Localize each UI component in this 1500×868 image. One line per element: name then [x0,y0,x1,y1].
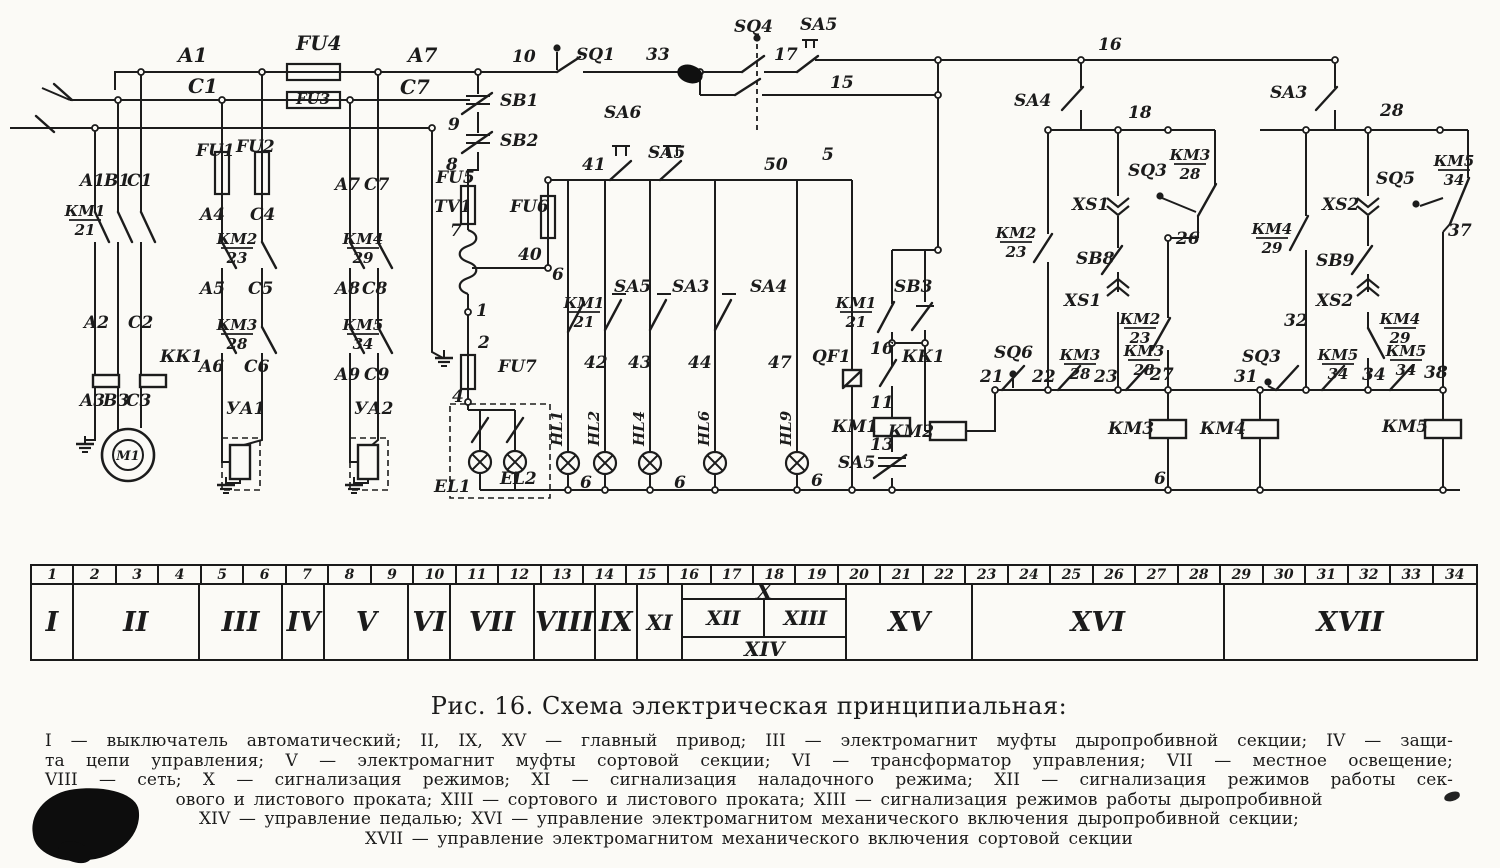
table-column-number: 31 [1306,566,1348,583]
table-column-number: 8 [329,566,371,583]
table-column-number: 33 [1391,566,1433,583]
component-label: КМ1 [831,417,878,437]
table-column-number: 12 [499,566,541,583]
component-label: A7 [406,43,438,67]
junction-dot [545,265,551,271]
section-index-table: 1234567891011121314151617181920212223242… [30,564,1478,661]
junction-dot [1045,387,1051,393]
component-label: A3 [78,391,105,411]
junction-dot [1440,387,1446,393]
component-label: SA5 [838,453,875,473]
component-label: SA5 [800,15,837,35]
junction-dot [1303,387,1309,393]
component-label: FU6 [509,197,549,217]
component-label: A1 [176,43,207,67]
component-label: XS2 [1315,291,1353,311]
component-label: 6 [674,473,686,493]
table-group-label: XVII [1225,585,1476,659]
table-number-row: 1234567891011121314151617181920212223242… [30,564,1478,585]
contact-stroke [36,116,54,132]
junction-dot [849,487,855,493]
actuator-dot [1412,200,1419,207]
table-column-number: 32 [1349,566,1391,583]
junction-dot [935,57,941,63]
table-column-number: 29 [1221,566,1263,583]
transformer-winding-icon [460,230,477,294]
component-label: SA6 [604,103,641,123]
junction-dot [602,487,608,493]
component-label: КМ4 [342,230,384,248]
junction-dot [1303,127,1309,133]
coil-icon [93,375,119,387]
table-group-label: II [74,585,200,659]
junction-dot [429,125,435,131]
component-label: A5 [198,279,225,299]
component-label: 34 [1444,171,1465,189]
junction-dot [935,92,941,98]
component-label: 37 [1448,221,1472,241]
component-label: 16 [870,339,894,359]
junction-dot [1365,127,1371,133]
component-label: 21 [74,221,96,239]
table-column-number: 20 [839,566,881,583]
table-column-number: 27 [1136,566,1178,583]
contact-stroke [1316,87,1337,110]
component-label: 43 [628,353,652,373]
component-label: 34 [353,335,374,353]
contact-stroke [118,212,132,242]
component-label: КМ1 [563,294,605,312]
component-label: 2 [477,333,490,353]
table-column-number: 3 [117,566,159,583]
component-label: 28 [1179,165,1201,183]
junction-dot [347,97,353,103]
component-label: SA5 [614,277,651,297]
table-group-signal-block: XIXXIIXIIIXIV [638,585,848,659]
junction-dot [1045,127,1051,133]
component-label: 26 [1175,229,1200,249]
junction-dot [259,69,265,75]
table-group-row: IIIIIIIVVVIVIIVIIIIXXIXXIIXIIIXIVXVXVIXV… [30,585,1478,661]
component-label: 10 [512,47,536,67]
junction-dot [1440,487,1446,493]
component-label: A6 [197,357,224,377]
component-label: 5 [822,145,834,165]
caption-line: ового и листового проката; XIII — сортов… [45,791,1453,811]
component-label: A2 [82,313,109,333]
component-label: SA5 [648,143,685,163]
component-label: A1 [78,171,105,191]
contact-stroke [742,56,764,72]
contact-stroke [610,161,631,180]
component-label: КМ2 [887,422,934,442]
component-label: TV1 [434,197,472,217]
schematic-figure: М1A1FU4A7C1FU3C7A1B1C1A2C2КК1A3B3C3FU1FU… [0,0,1500,558]
table-group-label: X [683,585,845,600]
component-label: КМ5 [1317,346,1359,364]
actuator-dot [1009,370,1016,377]
contact-stroke [1276,366,1298,390]
table-column-number: 23 [966,566,1008,583]
component-label: C5 [248,279,273,299]
component-label: КМ2 [1119,310,1161,328]
table-column-number: 1 [32,566,74,583]
component-label: 21 [573,313,595,331]
component-label: КМ4 [1379,310,1421,328]
table-column-number: 10 [414,566,456,583]
component-label: C3 [126,391,152,411]
contact-stroke [605,300,621,330]
component-label: 28 [226,335,248,353]
component-label: SB3 [894,277,933,297]
component-label: C1 [188,74,218,98]
table-group-label: III [200,585,284,659]
contact-stroke [1062,87,1083,110]
component-label: XS2 [1321,195,1359,215]
coil-icon [358,445,378,479]
component-label: A4 [198,205,225,225]
component-label: SQ1 [576,45,615,65]
component-label: A9 [333,365,360,385]
junction-dot [647,487,653,493]
component-label: 21 [845,313,867,331]
component-label: EL2 [499,469,537,489]
contact-stroke [262,242,276,268]
component-label: 6 [811,471,823,491]
component-label: КМ1 [64,202,106,220]
component-label: 6 [580,473,592,493]
contact-stroke [880,360,896,386]
component-label: 34 [1396,361,1417,379]
component-label: 6 [552,265,564,285]
junction-dot [475,69,481,75]
component-label: EL1 [433,477,471,497]
component-label: SA4 [1014,91,1051,111]
component-label: SA3 [1270,83,1307,103]
table-group-label: XV [847,585,973,659]
component-label: 41 [582,155,606,175]
table-group-label: XVI [973,585,1224,659]
component-label: C4 [250,205,275,225]
contact-stroke [141,212,155,242]
contact-stroke [1290,216,1308,250]
component-label: HL4 [630,411,648,447]
table-column-number: 19 [796,566,838,583]
table-column-number: 28 [1179,566,1221,583]
table-column-number: 21 [881,566,923,583]
table-column-number: 11 [457,566,499,583]
table-column-number: 22 [924,566,966,583]
component-label: SA3 [672,277,709,297]
component-label: SQ3 [1242,347,1281,367]
component-label: 44 [688,353,712,373]
contact-stroke [715,300,731,330]
component-label: КМ3 [216,316,258,334]
component-label: 18 [1128,103,1152,123]
component-label: 22 [1031,367,1056,387]
actuator-dot [553,44,560,51]
component-label: A8 [333,279,360,299]
component-label: КМ5 [1381,417,1428,437]
table-column-number: 16 [669,566,711,583]
junction-dot [1078,57,1084,63]
component-label: 15 [830,73,854,93]
actuator-dot [1156,192,1163,199]
caption-title: Рис. 16. Схема электрическая принципиаль… [45,692,1453,720]
figure-caption: Рис. 16. Схема электрическая принципиаль… [45,692,1453,849]
actuator-dot [1264,378,1271,385]
contact-stroke [797,56,818,72]
table-group-label: XII [683,600,765,636]
table-column-number: 2 [74,566,116,583]
motor-label: М1 [115,449,139,464]
component-label: SB2 [500,131,539,151]
table-group-label: VI [409,585,451,659]
component-label: 21 [979,367,1004,387]
contact-stroke [660,161,681,180]
wire [1162,198,1196,212]
contact-stroke [1368,328,1384,358]
junction-dot [375,69,381,75]
component-label: 40 [518,245,542,265]
table-column-number: 13 [542,566,584,583]
table-group-label: XI [638,585,684,659]
component-label: C1 [127,171,152,191]
component-label: 31 [1234,367,1258,387]
component-label: 4 [452,387,464,407]
table-column-number: 30 [1264,566,1306,583]
wire [1420,198,1443,206]
junction-dot [1165,487,1171,493]
component-label: SA4 [750,277,787,297]
component-label: HL1 [548,411,566,447]
table-column-number: 7 [287,566,329,583]
contact-stroke [1198,184,1216,216]
component-label: КМ1 [835,294,877,312]
junction-dot [1115,127,1121,133]
coil-icon [1242,420,1278,438]
component-label: 33 [646,45,670,65]
component-label: КМ3 [1169,146,1211,164]
table-column-number: 34 [1434,566,1476,583]
contact-stroke [1352,246,1372,274]
table-column-number: 5 [202,566,244,583]
component-label: 38 [1424,363,1448,383]
junction-dot [138,69,144,75]
component-label: 32 [1284,311,1308,331]
component-label: SQ3 [1128,161,1167,181]
junction-dot [115,97,121,103]
component-label: C7 [400,75,430,99]
component-label: 50 [764,155,788,175]
junction-dot [1365,387,1371,393]
component-label: 23 [1093,367,1118,387]
contact-stroke [1034,234,1052,262]
component-label: SQ6 [994,343,1033,363]
component-label: XS1 [1071,195,1109,215]
component-label: КМ4 [1199,419,1246,439]
component-label: 23 [226,249,248,267]
coil-icon [930,422,966,440]
component-label: SB8 [1076,249,1115,269]
junction-dot [1165,387,1171,393]
junction-dot [565,487,571,493]
coil-icon [1150,420,1186,438]
component-label: 29 [1261,239,1283,257]
component-label: HL2 [585,411,603,447]
table-column-number: 14 [584,566,626,583]
caption-line: VIII — сеть; X — сигнализация режимов; X… [45,771,1453,791]
component-label: УА2 [354,399,394,419]
table-group-label: V [325,585,409,659]
junction-dot [1332,57,1338,63]
table-group-label: I [32,585,74,659]
junction-dot [794,487,800,493]
table-column-number: 4 [159,566,201,583]
table-group-label: XIII [765,600,845,636]
component-label: 9 [448,115,460,135]
component-label: FU5 [435,168,475,188]
component-label: HL6 [695,410,713,447]
component-label: 7 [450,221,462,241]
component-label: 6 [1154,469,1166,489]
wire [432,128,443,358]
table-column-number: 9 [372,566,414,583]
junction-dot [1165,127,1171,133]
junction-dot [992,387,998,393]
junction-dot [889,487,895,493]
component-label: 28 [1379,101,1404,121]
component-label: 29 [352,249,374,267]
wire [966,390,995,431]
component-label: 47 [768,353,792,373]
junction-dot [1437,127,1443,133]
component-label: КМ5 [1433,152,1475,170]
component-label: КМ5 [342,316,384,334]
contact-stroke [650,300,666,330]
junction-dot [922,340,928,346]
component-label: XS1 [1063,291,1101,311]
component-label: FU7 [497,357,537,377]
component-label: 34 [1328,365,1349,383]
component-label: SB9 [1316,251,1355,271]
contact-stroke [878,302,894,332]
coil-icon [230,445,250,479]
component-label: 17 [774,45,798,65]
table-column-number: 15 [627,566,669,583]
table-column-number: 26 [1094,566,1136,583]
component-label: SB1 [500,91,538,111]
component-label: C6 [244,357,270,377]
component-label: КМ4 [1251,220,1293,238]
component-label: 34 [1362,365,1386,385]
connector-icon [1357,198,1379,207]
component-label: C9 [364,365,390,385]
table-column-number: 6 [244,566,286,583]
junction-dot [92,125,98,131]
component-label: 42 [584,353,608,373]
connector-icon [1107,198,1129,207]
component-label: УА1 [226,399,265,419]
component-label: 28 [1069,365,1091,383]
component-label: A7 [333,175,360,195]
junction-dot [712,487,718,493]
junction-dot [1115,387,1121,393]
scanned-schematic-page: М1A1FU4A7C1FU3C7A1B1C1A2C2КК1A3B3C3FU1FU… [0,0,1500,868]
junction-dot [1257,487,1263,493]
component-label: 16 [1098,35,1122,55]
table-column-number: 25 [1051,566,1093,583]
component-label: КМ2 [995,224,1037,242]
caption-line: XVII — управление электромагнитом механи… [45,830,1453,850]
component-label: FU2 [235,137,275,157]
contact-stroke [262,327,276,353]
component-label: C8 [362,279,388,299]
junction-dot [465,399,471,405]
caption-line: XIV — управление педалью; XVI — управлен… [45,810,1453,830]
component-label: КМ5 [1385,342,1427,360]
caption-line: I — выключатель автоматический; II, IX, … [45,732,1453,752]
table-column-number: 24 [1009,566,1051,583]
component-label: 23 [1005,243,1027,261]
component-label: QF1 [812,347,851,367]
contact-stroke [912,303,932,330]
junction-dot [219,97,225,103]
component-label: SQ5 [1376,169,1415,189]
table-column-number: 17 [712,566,754,583]
component-label: FU4 [295,31,342,55]
caption-line: та цепи управления; V — электромагнит му… [45,752,1453,772]
component-label: C7 [364,175,390,195]
table-group-label: IX [596,585,638,659]
component-label: C2 [128,313,154,333]
component-label: 11 [870,393,894,413]
table-group-label: XIV [683,636,845,659]
component-label: FU1 [195,141,235,161]
component-label: КМ3 [1123,342,1165,360]
component-label: FU3 [295,90,330,108]
component-label: КМ2 [216,230,258,248]
component-label: 28 [1133,361,1155,379]
component-label: HL9 [777,410,795,447]
component-label: SQ4 [734,17,773,37]
table-group-label: VIII [535,585,596,659]
table-group-label: VII [451,585,535,659]
coil-icon [1425,420,1461,438]
junction-dot [545,177,551,183]
component-label: КК1 [159,347,203,367]
component-label: 1 [476,301,488,321]
coil-icon [140,375,166,387]
junction-dot [1257,387,1263,393]
table-group-label: IV [283,585,325,659]
junction-dot [465,309,471,315]
component-label: КК1 [901,347,945,367]
component-label: КМ3 [1107,419,1154,439]
junction-dot [935,247,941,253]
junction-dot [1165,235,1171,241]
component-label: КМ3 [1059,346,1101,364]
